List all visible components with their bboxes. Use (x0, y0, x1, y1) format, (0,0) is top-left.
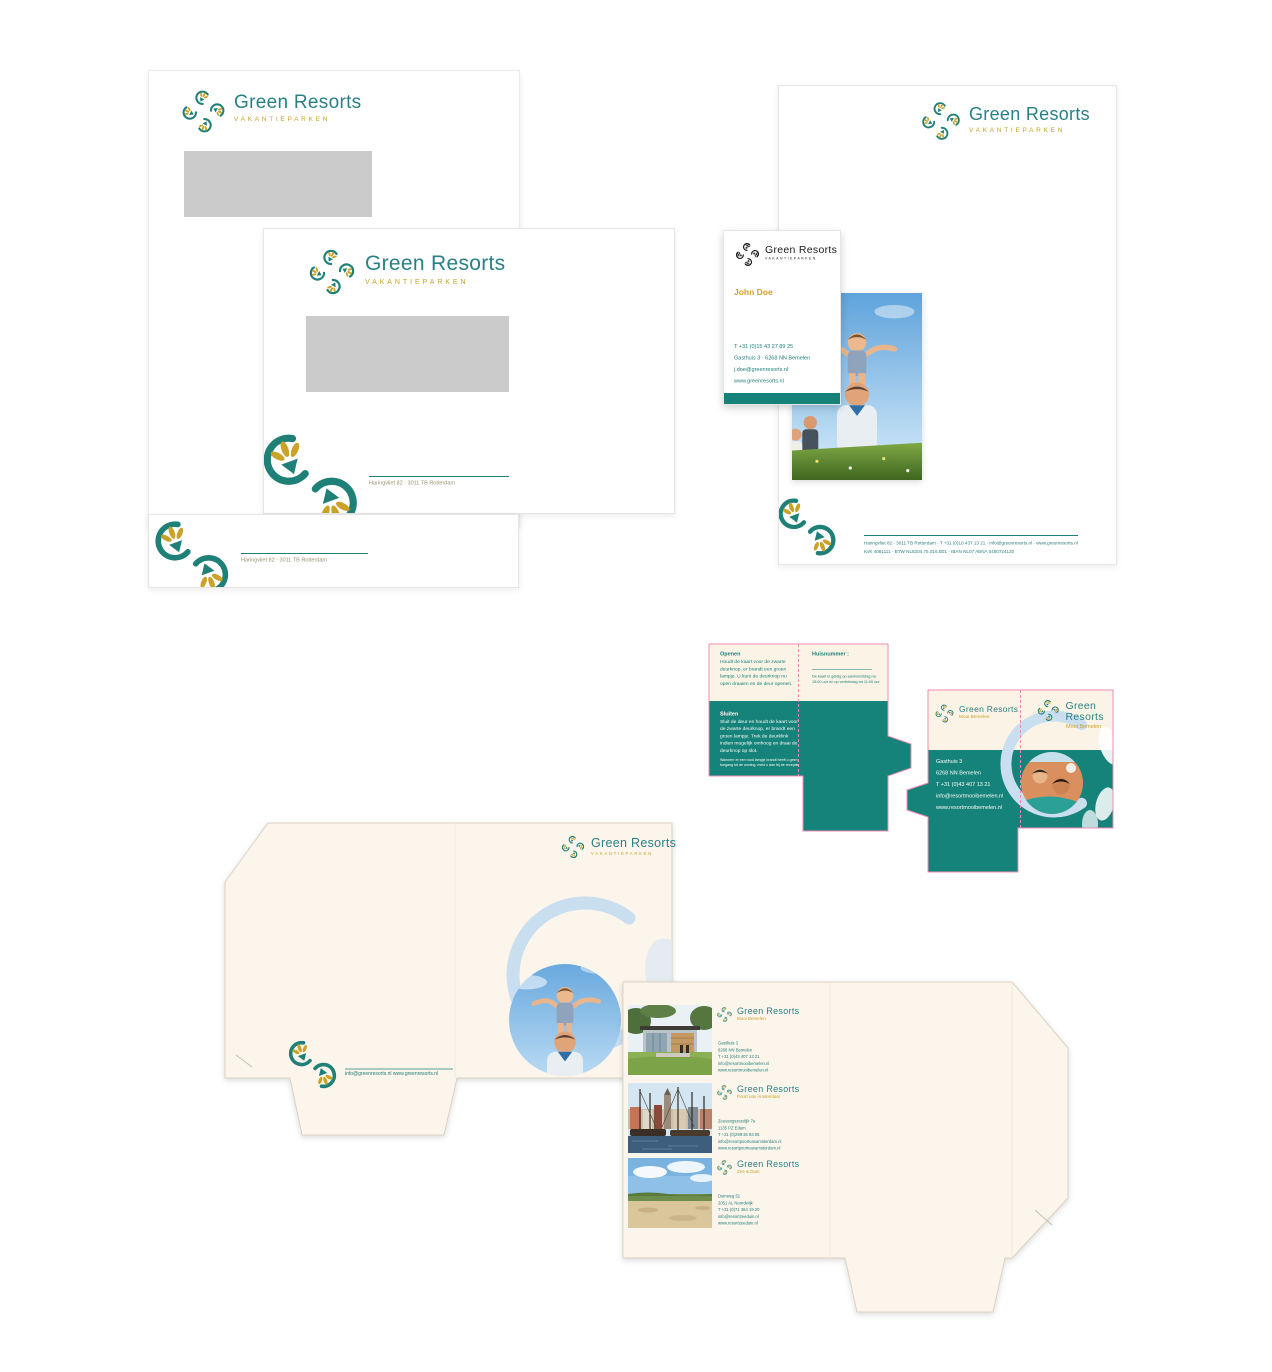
keycard-close-note: Wanneer er een rood lampje brandt heeft … (720, 758, 800, 768)
letterhead-footer-line2: KvK 4081111 · BTW NL8204.75.016.B01 · IB… (864, 548, 1094, 557)
business-card: Green Resorts VAKANTIEPARKEN John Doe T … (723, 230, 841, 405)
logo-black: Green Resorts VAKANTIEPARKEN (734, 241, 841, 268)
sender-address: Haringvliet 82 · 3011 TB Rotterdam (369, 480, 541, 486)
cardholder-name: John Doe (734, 287, 773, 297)
logo-duo-mark-icon (151, 517, 247, 588)
brand-tagline: VAKANTIEPARKEN (765, 257, 841, 261)
resort-email: info@resortmooibemelen.nl (936, 791, 1016, 803)
resort-email: info@resortmooibemelen.nl (718, 1060, 828, 1067)
keycard-room-label: Huisnummer : (812, 651, 884, 657)
brand-wordmark: Green Resorts (1066, 701, 1137, 723)
resort-address1: Gasthuis 3 (718, 1040, 828, 1047)
keycard-open-title: Openen (720, 651, 796, 657)
keycard-close-body: Sluit de deur en houdt de kaart voor de … (720, 719, 800, 755)
brand-tagline: VAKANTIEPARKEN (591, 851, 715, 856)
room-number-line (812, 657, 872, 670)
logo-mark-icon (716, 1159, 733, 1176)
resort-phone: T +31 (0)43 407 13 21 (936, 779, 1016, 791)
logo-mark-icon (306, 246, 358, 298)
brand-wordmark: Green Resorts (765, 245, 841, 256)
letterhead-footer-line1: Haringvliet 82 · 3011 TB Rotterdam · T +… (864, 539, 1094, 548)
address-window (306, 316, 509, 392)
harbor-photo (628, 1083, 712, 1153)
resort-address1: Gasthuis 3 (936, 756, 1016, 768)
footer-rule (864, 535, 1078, 536)
presentation-folder-inside: Green Resorts Mooi Bemelen Gasthuis 3 62… (620, 980, 1080, 1325)
brand-tagline: VAKANTIEPARKEN (365, 278, 572, 286)
resort-website: www.resortmooibemelen.nl (936, 802, 1016, 814)
logo-mark-icon (716, 1084, 733, 1101)
logo: Green Resorts Zee & Duin (716, 1159, 799, 1179)
brand-wordmark: Green Resorts (959, 705, 1020, 714)
logo: Green Resorts VAKANTIEPARKEN (306, 246, 572, 298)
envelope-c5-window: Green Resorts VAKANTIEPARKEN Haringvliet… (263, 228, 675, 514)
resort-phone: T +31 (0)43 407 13 21 (718, 1054, 828, 1061)
keycard-open-body: Houdt de kaart voor de zwarte deurknop, … (720, 659, 796, 688)
keycard-diecut-instructions: Openen Houdt de kaart voor de zwarte deu… (706, 640, 918, 836)
logo-duo-mark-icon (263, 429, 368, 514)
resort-subtitle: Mooi Bemelen (737, 1016, 799, 1021)
keycard-close-title: Sluiten (720, 711, 800, 717)
keycard-diecut-cover: Green Resorts Mooi Bemelen Green Resorts… (904, 686, 1118, 878)
resort-phone: T +31 (0)299 36 93 05 (718, 1132, 828, 1139)
card-footer-bar (724, 393, 840, 404)
brand-wordmark: Green Resorts (969, 105, 1117, 124)
resort-email: info@resortzeeduin.nl (718, 1213, 828, 1220)
logo-duo-mark-icon (778, 495, 857, 565)
logo-mark-icon (919, 99, 963, 143)
identity-mockup-board: Green Resorts VAKANTIEPARKEN Green Resor… (0, 0, 1272, 1372)
resort-address2: 6268 NN Bemelen (936, 768, 1016, 780)
address-rule (241, 553, 368, 554)
resort-subtitle: Mooi Bemelen (959, 714, 1020, 720)
logo: Green Resorts Mooi Bemelen (934, 703, 1020, 725)
logo-mark-icon (716, 1006, 733, 1023)
address-window (184, 151, 372, 217)
card-email: j.doe@greenresorts.nl (734, 364, 834, 376)
folder-diecut-shape (222, 820, 677, 1150)
resort-subtitle: Poort van Amsterdam (737, 1094, 824, 1099)
logo: Green Resorts VAKANTIEPARKEN (560, 834, 715, 862)
envelope-dl: Haringvliet 82 · 3011 TB Rotterdam (148, 514, 519, 588)
logo-mark-icon (934, 703, 955, 724)
presentation-folder-front: Green Resorts VAKANTIEPARKEN info@greenr… (222, 820, 677, 1150)
logo-mark-icon (734, 241, 761, 268)
keycard-validity-note: De kaart is geldig op aankomstdag na 15:… (812, 674, 884, 685)
logo-mark-icon (1036, 698, 1061, 723)
resort-subtitle: Mooi Bemelen (1066, 724, 1137, 730)
brand-tagline: VAKANTIEPARKEN (969, 126, 1117, 134)
brand-tagline: VAKANTIEPARKEN (234, 115, 426, 123)
resort-phone: T +31 (0)71 364 19 20 (718, 1207, 828, 1214)
lodge-photo (628, 1005, 712, 1075)
resort-address1: Duinweg 51 (718, 1193, 828, 1200)
logo: Green Resorts VAKANTIEPARKEN (919, 99, 1117, 143)
resort-address2: 6268 NN Bemelen (718, 1047, 828, 1054)
cut-line (225, 823, 672, 1135)
brand-wordmark: Green Resorts (234, 93, 426, 113)
resort-website: www.resortpoortvanamsterdam.nl (718, 1145, 828, 1152)
card-website: www.greenresorts.nl (734, 376, 834, 388)
logo: Green Resorts Mooi Bemelen (1036, 698, 1136, 736)
logo-mark-icon (560, 834, 586, 860)
logo: Green Resorts VAKANTIEPARKEN (179, 87, 426, 136)
brand-wordmark: Green Resorts (365, 253, 572, 275)
sender-address: Haringvliet 82 · 3011 TB Rotterdam (241, 557, 413, 563)
resort-email: info@resortpoortvanamsterdam.nl (718, 1138, 828, 1145)
resort-website: www.resortmooibemelen.nl (718, 1067, 828, 1074)
beach-photo (628, 1158, 712, 1228)
resort-address2: 2051 AL Noordwijk (718, 1200, 828, 1207)
address-rule (369, 476, 509, 477)
card-phone: T +31 (0)15 43 27 89 25 (734, 341, 834, 353)
folder-contact-line: info@greenresorts.nl www.greenresorts.nl (345, 1071, 495, 1077)
logo: Green Resorts Poort van Amsterdam (716, 1084, 824, 1104)
card-address: Gasthuis 3 · 6268 NN Bemelen (734, 353, 834, 365)
brand-wordmark: Green Resorts (591, 837, 715, 850)
guests-photo (1021, 752, 1083, 814)
logo: Green Resorts Mooi Bemelen (716, 1006, 799, 1026)
resort-address1: Zeevangszeedijk 7a (718, 1118, 828, 1125)
resort-subtitle: Zee & Duin (737, 1169, 799, 1174)
logo-mark-icon (179, 87, 228, 136)
resort-website: www.resortzeeduin.nl (718, 1220, 828, 1227)
resort-address2: 1135 PZ Edam (718, 1125, 828, 1132)
